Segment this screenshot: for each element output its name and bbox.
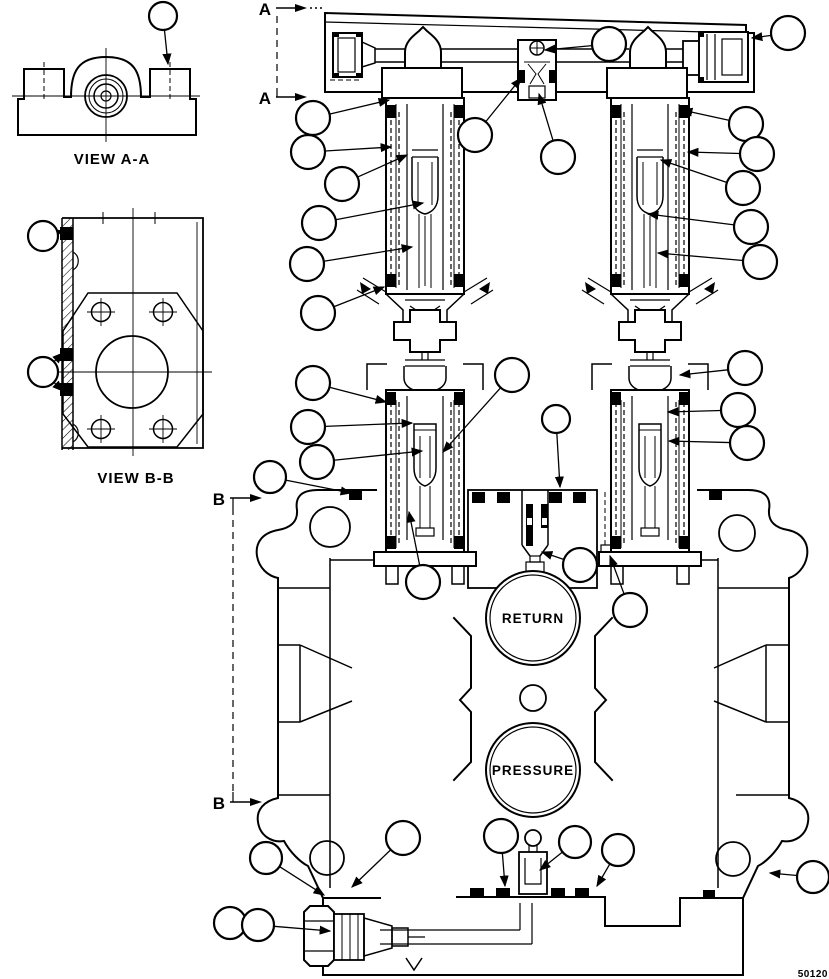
callout-leader-line [164, 30, 168, 64]
callout-leader-line [557, 433, 560, 487]
callout-balloon [771, 16, 805, 50]
callout-balloon [296, 366, 330, 400]
seal [387, 392, 396, 405]
callout-balloon [602, 834, 634, 866]
callout-balloon [291, 410, 325, 444]
callout-balloon [613, 593, 647, 627]
callout-balloon [302, 206, 336, 240]
section-marker-b-top: B [213, 490, 225, 509]
seal [454, 536, 463, 549]
callout-leader-line [352, 850, 391, 887]
callout-balloon [495, 358, 529, 392]
callout-balloon [28, 357, 58, 387]
callout-balloon [386, 821, 420, 855]
callout-balloon [250, 842, 282, 874]
seal [709, 490, 722, 500]
bolt-holes [87, 298, 177, 443]
hydraulic-valve-assembly-diagram: RETURN PRESSURE [0, 0, 829, 979]
callout-balloon [28, 221, 58, 251]
pressure-port-label: PRESSURE [492, 763, 574, 778]
bottom-end-block [304, 830, 743, 975]
relief-valve [519, 830, 547, 894]
bolt [497, 492, 510, 503]
seal [454, 274, 463, 287]
callout-balloon [563, 548, 597, 582]
callout-balloon [296, 101, 330, 135]
section-line-a: A A [259, 0, 324, 108]
callout-leader-line [688, 152, 740, 154]
section-marker-a-top: A [259, 0, 271, 19]
callout-leader-line [597, 864, 610, 886]
callout-balloon [730, 426, 764, 460]
callout-balloon [484, 819, 518, 853]
callout-leader-line [330, 100, 389, 114]
figure-code: 50120 [798, 969, 828, 979]
callout-balloon [406, 565, 440, 599]
v-notch [406, 958, 422, 970]
callout-balloon [797, 861, 829, 893]
seal [575, 888, 589, 897]
callout-balloon [300, 445, 334, 479]
callout-leader-line [334, 287, 384, 307]
callout-balloon [458, 118, 492, 152]
bolt [549, 492, 562, 503]
gauge-hole [520, 685, 546, 711]
callout-balloon [729, 107, 763, 141]
callout-balloon [242, 909, 274, 941]
callout-balloon [559, 826, 591, 858]
seal [470, 888, 484, 897]
callout-balloon [740, 137, 774, 171]
view-bb-label: VIEW B-B [97, 470, 174, 487]
callout-balloon [301, 296, 335, 330]
callout-leader-line [680, 370, 728, 375]
seal [387, 536, 396, 549]
diagram-page: RETURN PRESSURE [0, 0, 829, 979]
internal-passage [380, 903, 532, 944]
bottom-flange [374, 552, 476, 566]
callout-leader-line [770, 873, 797, 876]
section-marker-a-bottom: A [259, 89, 271, 108]
lower-shoulder [367, 364, 483, 390]
seal [454, 105, 463, 118]
callout-balloon [721, 393, 755, 427]
casting-web [595, 618, 612, 780]
callout-balloon [290, 247, 324, 281]
callout-balloon [726, 171, 760, 205]
callout-leader-line [325, 147, 391, 151]
valve-cap [382, 68, 462, 98]
bolt [573, 492, 586, 503]
section-line-b: B B [213, 490, 262, 813]
seal [551, 888, 565, 897]
callout-balloon [254, 461, 286, 493]
seal [387, 274, 396, 287]
seal [703, 890, 715, 898]
view-bb-detail: VIEW B-B [52, 208, 212, 487]
seal [349, 490, 362, 500]
callout-balloon [542, 405, 570, 433]
mounting-hole [310, 507, 350, 547]
callout-leader-line [502, 853, 505, 886]
callout-balloon [291, 135, 325, 169]
seal [387, 105, 396, 118]
callout-leader-line [539, 94, 553, 141]
callout-balloon [149, 2, 177, 30]
callout-balloon [728, 351, 762, 385]
callout-balloon [592, 27, 626, 61]
callout-leader-line [286, 480, 351, 493]
callout-balloon [325, 167, 359, 201]
callout-balloon [734, 210, 768, 244]
seal [496, 888, 510, 897]
seal [60, 227, 73, 240]
callout-balloon [743, 245, 777, 279]
bolt [472, 492, 485, 503]
view-aa-detail: VIEW A-A [12, 48, 200, 168]
view-aa-label: VIEW A-A [74, 151, 151, 168]
seal [454, 392, 463, 405]
end-plug-fitting [304, 906, 425, 966]
casting-web [454, 618, 471, 780]
mounting-hole [310, 841, 344, 875]
return-port-label: RETURN [502, 611, 564, 626]
mounting-hole [719, 515, 755, 551]
section-marker-b-bottom: B [213, 794, 225, 813]
mounting-hole [716, 842, 750, 876]
callout-leader-line [329, 387, 386, 402]
callout-balloon [541, 140, 575, 174]
